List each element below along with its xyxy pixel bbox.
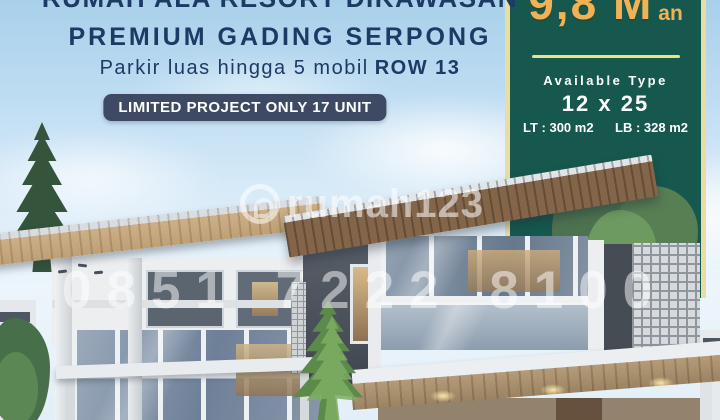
downlight [648,377,674,389]
right-house-door [556,398,602,420]
lt-value: LT : 300 m2 [523,120,594,135]
lb-value: LB : 328 m2 [615,120,688,135]
subtitle-text: Parkir luas hingga 5 mobil [100,57,369,79]
brand-watermark: rumah123 [240,184,484,224]
price-suffix: an [658,3,683,26]
land-building-sizes: LT : 300 m2 LB : 328 m2 [510,120,701,135]
carport-post [66,378,75,420]
brand-watermark-text: rumah123 [287,184,484,224]
property-flyer: 9,8 M an Available Type 12 x 25 LT : 300… [0,0,720,420]
headline-line2: PREMIUM GADING SERPONG [0,25,560,50]
downlight [540,384,566,396]
type-size-value: 12 x 25 [510,91,701,117]
subtitle-row-label: ROW 13 [375,57,461,79]
rumah123-logo-icon [240,184,280,224]
downlight [430,390,456,402]
limited-project-badge: LIMITED PROJECT ONLY 17 UNIT [103,94,386,121]
headline-block: RUMAH ALA RESORT DIKAWASAN PREMIUM GADIN… [0,0,560,78]
headline-line1: RUMAH ALA RESORT DIKAWASAN [0,0,560,12]
headline-subtitle: Parkir luas hingga 5 mobilROW 13 [0,58,560,78]
phone-watermark: 0851 7222 8100 [62,264,667,317]
